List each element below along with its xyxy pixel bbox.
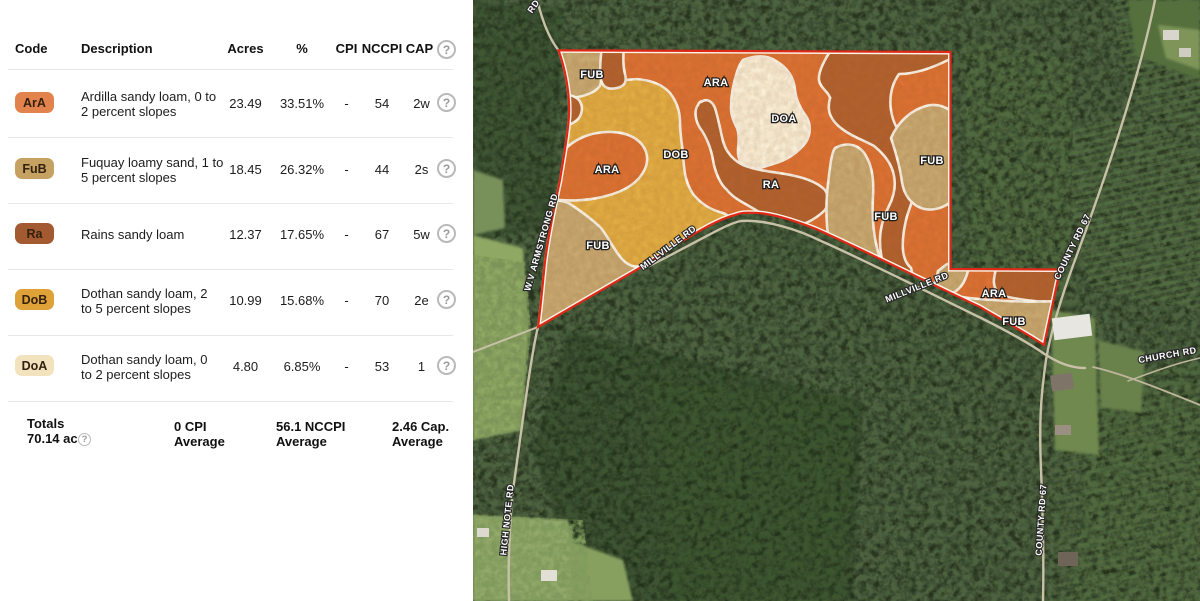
svg-text:FUB: FUB [580,69,604,81]
svg-text:FUB: FUB [920,155,944,167]
svg-text:ARA: ARA [704,77,729,89]
svg-text:FUB: FUB [586,240,610,252]
svg-text:ARA: ARA [595,164,620,176]
svg-text:ARA: ARA [982,288,1007,300]
svg-text:FUB: FUB [874,211,898,223]
svg-text:DOA: DOA [771,113,796,125]
svg-text:DOB: DOB [663,149,688,161]
svg-text:FUB: FUB [1002,316,1026,328]
svg-text:RA: RA [763,179,780,191]
